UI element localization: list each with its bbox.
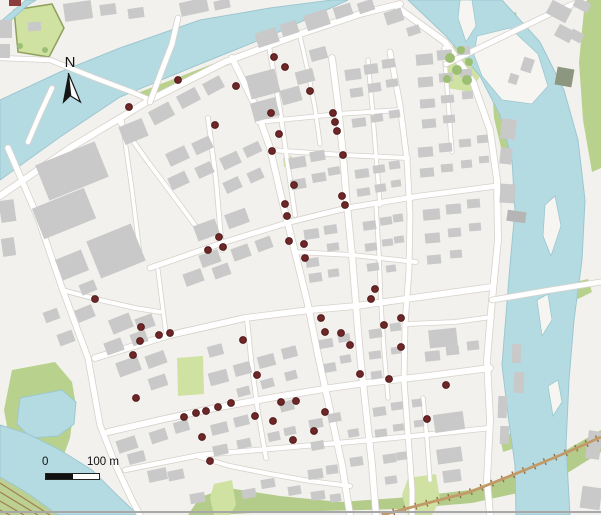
- find-spot-dot: [199, 434, 206, 441]
- find-spot-dot: [386, 376, 393, 383]
- tree: [452, 65, 462, 75]
- building: [420, 167, 435, 177]
- building: [349, 87, 363, 98]
- building: [512, 344, 522, 363]
- building: [425, 350, 441, 362]
- find-spot-dot: [193, 410, 200, 417]
- scale-bar-black-segment: [46, 474, 73, 479]
- building: [367, 82, 381, 93]
- building: [469, 222, 482, 231]
- find-spot-dot: [130, 352, 137, 359]
- find-spot-dot: [334, 128, 341, 135]
- building: [389, 322, 401, 331]
- scale-bar-graphic: [45, 473, 100, 480]
- scale-distance-label: 100 m: [87, 456, 119, 468]
- scale-zero-label: 0: [42, 456, 48, 468]
- building: [450, 249, 463, 258]
- find-spot-dot: [443, 382, 450, 389]
- building: [385, 475, 398, 485]
- building: [448, 227, 462, 237]
- find-spot-dot: [398, 344, 405, 351]
- find-spot-dot: [332, 119, 339, 126]
- building: [369, 350, 382, 360]
- building: [443, 114, 456, 123]
- building: [461, 160, 473, 169]
- building: [442, 469, 461, 483]
- find-spot-dot: [424, 416, 431, 423]
- building: [327, 242, 340, 252]
- building: [365, 242, 378, 252]
- find-spot-dot: [342, 202, 349, 209]
- building: [462, 91, 474, 100]
- find-spot-dot: [254, 372, 261, 379]
- building: [427, 254, 442, 264]
- building: [323, 224, 337, 235]
- building: [446, 203, 462, 214]
- find-spot-dot: [269, 148, 276, 155]
- building: [392, 213, 403, 222]
- find-spot-dot: [220, 244, 227, 251]
- building: [0, 44, 10, 58]
- building: [499, 183, 515, 203]
- find-spot-dot: [137, 338, 144, 345]
- building: [414, 419, 425, 427]
- building: [9, 0, 21, 6]
- find-spot-dot: [276, 131, 283, 138]
- building: [373, 164, 386, 174]
- building: [367, 262, 380, 272]
- building: [555, 67, 575, 88]
- find-spot-dot: [268, 110, 275, 117]
- find-spot-dot: [126, 104, 133, 111]
- building: [498, 396, 508, 418]
- building: [411, 398, 422, 407]
- building: [580, 486, 601, 511]
- find-spot-dot: [212, 122, 219, 129]
- building: [425, 232, 441, 243]
- building: [499, 147, 513, 164]
- building: [381, 58, 395, 69]
- north-arrow-right-half: [68, 72, 80, 103]
- building: [388, 160, 400, 169]
- building: [416, 53, 434, 65]
- find-spot-dot: [381, 322, 388, 329]
- find-spot-dot: [293, 398, 300, 405]
- building: [418, 146, 434, 157]
- building: [308, 272, 322, 283]
- green-area: [210, 480, 236, 515]
- building: [382, 453, 396, 464]
- building: [1, 237, 16, 257]
- tree: [465, 58, 473, 66]
- building: [467, 340, 480, 350]
- find-spot-dot: [322, 329, 329, 336]
- map-figure: N 0 100 m: [0, 0, 601, 515]
- building: [363, 63, 378, 75]
- building: [428, 328, 458, 349]
- building: [327, 268, 339, 277]
- find-spot-dot: [398, 315, 405, 322]
- building: [459, 138, 472, 147]
- find-spot-dot: [372, 286, 379, 293]
- building: [380, 216, 393, 226]
- north-indicator: N: [57, 55, 83, 106]
- find-spot-dot: [338, 330, 345, 337]
- find-spot-dot: [233, 83, 240, 90]
- building: [375, 428, 388, 438]
- find-spot-dot: [215, 404, 222, 411]
- find-spot-dot: [216, 234, 223, 241]
- building: [514, 372, 525, 393]
- building: [500, 426, 510, 444]
- find-spot-dot: [322, 409, 329, 416]
- building: [362, 220, 376, 231]
- tree: [42, 47, 48, 53]
- building: [0, 20, 12, 38]
- find-spot-dot: [311, 428, 318, 435]
- find-spot-dot: [203, 408, 210, 415]
- find-spot-dot: [240, 337, 247, 344]
- find-spot-dot: [301, 241, 308, 248]
- find-spot-dot: [167, 330, 174, 337]
- building: [368, 328, 382, 339]
- building: [386, 78, 399, 88]
- green-area: [177, 356, 204, 396]
- tree: [457, 46, 465, 54]
- north-arrow-icon: [55, 71, 84, 108]
- find-spot-dot: [205, 247, 212, 254]
- find-spot-dot: [291, 182, 298, 189]
- find-spot-dot: [286, 238, 293, 245]
- find-spot-dot: [278, 399, 285, 406]
- find-spot-dot: [330, 110, 337, 117]
- building: [420, 98, 436, 108]
- building: [391, 179, 402, 187]
- find-spot-dot: [284, 213, 291, 220]
- city-map-canvas: [0, 0, 601, 515]
- find-spot-dot: [207, 458, 214, 465]
- find-spot-dot: [228, 400, 235, 407]
- tree: [445, 53, 455, 63]
- building: [28, 21, 42, 31]
- building: [441, 163, 454, 172]
- building: [99, 3, 116, 16]
- find-spot-dot: [271, 54, 278, 61]
- building: [307, 468, 323, 480]
- building: [422, 118, 437, 128]
- building: [467, 198, 481, 208]
- scale-bar-white-segment: [73, 474, 100, 479]
- building: [303, 228, 319, 240]
- building: [479, 156, 490, 164]
- building: [395, 451, 407, 460]
- find-spot-dot: [156, 332, 163, 339]
- building: [344, 68, 361, 81]
- map-frame-line: [0, 511, 601, 513]
- building: [423, 208, 441, 220]
- building: [374, 183, 386, 192]
- find-spot-dot: [339, 193, 346, 200]
- find-spot-dot: [368, 296, 375, 303]
- north-label: N: [57, 55, 83, 71]
- find-spot-dot: [290, 437, 297, 444]
- find-spot-dot: [347, 342, 354, 349]
- find-spot-dot: [357, 371, 364, 378]
- building: [349, 456, 363, 467]
- building: [441, 94, 455, 103]
- find-spot-dot: [181, 414, 188, 421]
- building: [370, 370, 382, 379]
- find-spot-dot: [318, 315, 325, 322]
- tree: [443, 75, 451, 83]
- building: [329, 493, 341, 502]
- find-spot-dot: [252, 413, 259, 420]
- find-spot-dot: [340, 152, 347, 159]
- building: [372, 406, 386, 417]
- building: [500, 118, 517, 139]
- tree: [462, 75, 472, 85]
- find-spot-dot: [282, 64, 289, 71]
- building: [371, 113, 384, 123]
- building: [386, 264, 397, 272]
- find-spot-dot: [282, 201, 289, 208]
- building: [394, 235, 405, 243]
- building: [418, 76, 434, 87]
- building: [477, 135, 489, 144]
- find-spot-dot: [175, 77, 182, 84]
- building: [325, 464, 338, 475]
- building: [446, 345, 460, 355]
- find-spot-dot: [133, 395, 140, 402]
- find-spot-dot: [138, 324, 145, 331]
- find-spot-dot: [307, 88, 314, 95]
- building: [388, 109, 400, 118]
- tree: [17, 43, 23, 49]
- building: [391, 401, 404, 411]
- find-spot-dot: [92, 296, 99, 303]
- scale-bar: 0 100 m: [40, 456, 130, 484]
- building: [439, 142, 453, 152]
- find-spot-dot: [302, 255, 309, 262]
- find-spot-dot: [270, 418, 277, 425]
